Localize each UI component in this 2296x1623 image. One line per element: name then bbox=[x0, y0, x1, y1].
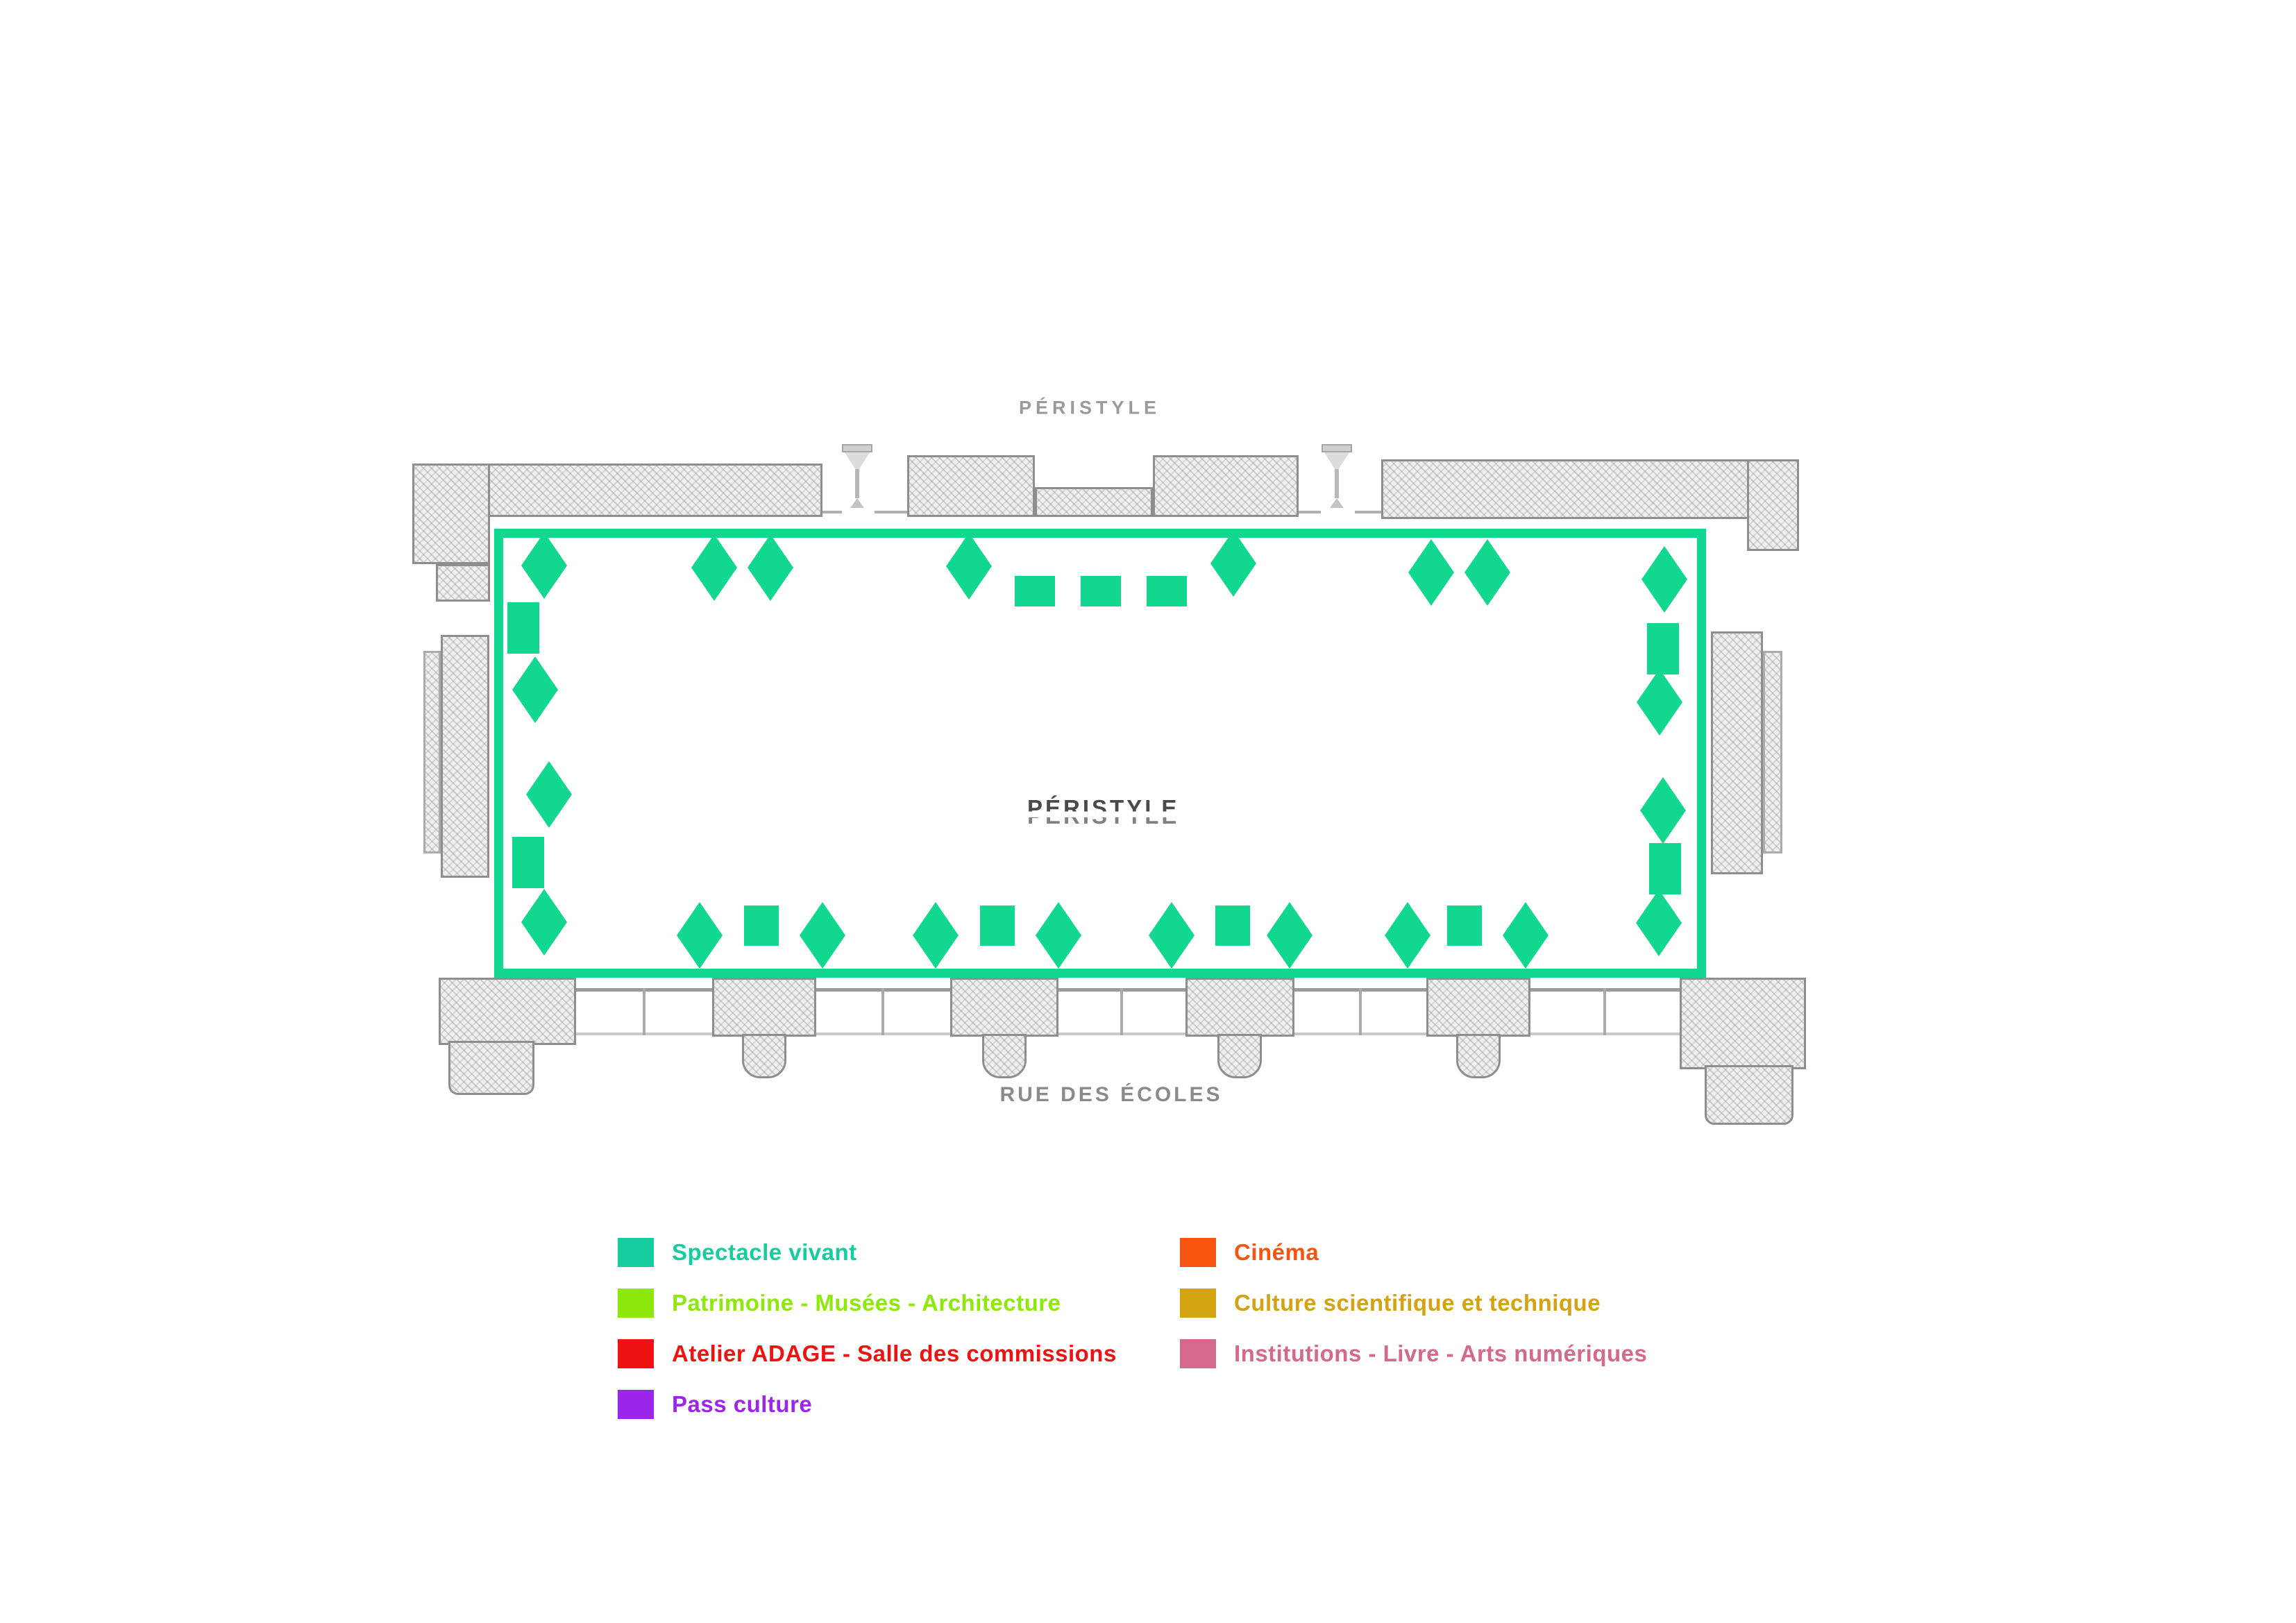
threshold-line bbox=[875, 511, 907, 513]
wall-top-center-right bbox=[1153, 455, 1299, 517]
legend-item: Patrimoine - Musées - Architecture bbox=[618, 1289, 1117, 1318]
legend-item: Culture scientifique et technique bbox=[1180, 1289, 1647, 1318]
wall-top-center-left bbox=[907, 455, 1035, 517]
wall-top-right bbox=[1381, 459, 1799, 519]
wall-pier bbox=[712, 978, 816, 1037]
legend-swatch bbox=[1180, 1339, 1216, 1368]
entrance-symbol-foot bbox=[850, 498, 864, 508]
booth-rect bbox=[1215, 906, 1250, 946]
legend-label: Culture scientifique et technique bbox=[1234, 1289, 1601, 1318]
wall-pier-base bbox=[982, 1034, 1027, 1078]
legend-item: Institutions - Livre - Arts numériques bbox=[1180, 1339, 1647, 1368]
booth-rect bbox=[1447, 906, 1482, 946]
wall-right-column bbox=[1711, 631, 1763, 874]
wall-right-outer bbox=[1763, 651, 1782, 853]
wall-pier-base bbox=[742, 1034, 786, 1078]
wall-pier bbox=[1426, 978, 1530, 1037]
wall-bottom-corner-right-base bbox=[1705, 1065, 1793, 1125]
facade-tick bbox=[643, 988, 645, 1035]
booth-rect bbox=[1649, 843, 1681, 894]
legend-item: Spectacle vivant bbox=[618, 1238, 1117, 1267]
entrance-symbol-icon bbox=[841, 444, 874, 511]
legend-label: Cinéma bbox=[1234, 1238, 1319, 1267]
threshold-line bbox=[822, 511, 842, 513]
legend-label: Patrimoine - Musées - Architecture bbox=[672, 1289, 1061, 1318]
legend-swatch bbox=[618, 1238, 654, 1267]
facade-tick bbox=[1359, 988, 1362, 1035]
booth-rect bbox=[980, 906, 1015, 946]
threshold-line bbox=[1299, 511, 1321, 513]
facade-tick bbox=[1603, 988, 1606, 1035]
legend-column-right: CinémaCulture scientifique et techniqueI… bbox=[1180, 1238, 1647, 1390]
wall-pier-base bbox=[1217, 1034, 1262, 1078]
legend-swatch bbox=[618, 1289, 654, 1318]
booth-rect bbox=[512, 837, 544, 888]
legend-column-left: Spectacle vivantPatrimoine - Musées - Ar… bbox=[618, 1238, 1117, 1441]
booth-rect bbox=[744, 906, 779, 946]
wall-pier bbox=[950, 978, 1058, 1037]
booth-rect bbox=[1647, 623, 1679, 674]
label-peristyle-top: PÉRISTYLE bbox=[1019, 398, 1160, 419]
legend-label: Pass culture bbox=[672, 1390, 812, 1419]
legend-label: Institutions - Livre - Arts numériques bbox=[1234, 1339, 1647, 1368]
facade-tick bbox=[1120, 988, 1123, 1035]
entrance-symbol-cap bbox=[1322, 444, 1352, 452]
wall-bottom-corner-left-base bbox=[448, 1041, 534, 1095]
wall-pier bbox=[1185, 978, 1294, 1037]
entrance-symbol-stem bbox=[1335, 469, 1339, 498]
wall-left-outer bbox=[423, 651, 441, 853]
entrance-symbol-bowl bbox=[845, 452, 870, 469]
wall-bottom-corner-left bbox=[439, 978, 576, 1045]
booth-rect bbox=[507, 602, 539, 654]
label-rue-des-ecoles: RUE DES ÉCOLES bbox=[999, 1083, 1222, 1107]
wall-left-column bbox=[441, 635, 489, 878]
entrance-symbol-icon bbox=[1320, 444, 1353, 511]
legend-label: Atelier ADAGE - Salle des commissions bbox=[672, 1339, 1117, 1368]
legend-item: Pass culture bbox=[618, 1390, 1117, 1419]
booth-rect bbox=[1147, 576, 1187, 606]
legend-item: Atelier ADAGE - Salle des commissions bbox=[618, 1339, 1117, 1368]
wall-top-right-cap bbox=[1747, 459, 1799, 551]
legend-swatch bbox=[618, 1390, 654, 1419]
booth-rect bbox=[1081, 576, 1121, 606]
wall-top-left-cap bbox=[412, 464, 490, 564]
legend-swatch bbox=[618, 1339, 654, 1368]
floor-plan-page: PÉRISTYLE PÉRISTYLE PÉRISTYLE RUE DES ÉC… bbox=[0, 0, 2296, 1623]
legend-item: Cinéma bbox=[1180, 1238, 1647, 1267]
wall-top-left-step bbox=[436, 564, 490, 602]
legend-swatch bbox=[1180, 1238, 1216, 1267]
legend-swatch bbox=[1180, 1289, 1216, 1318]
facade-tick bbox=[881, 988, 884, 1035]
entrance-symbol-foot bbox=[1330, 498, 1344, 508]
threshold-line bbox=[1355, 511, 1381, 513]
booth-rect bbox=[1015, 576, 1055, 606]
wall-top-center-recess bbox=[1035, 487, 1153, 517]
legend-label: Spectacle vivant bbox=[672, 1238, 857, 1267]
entrance-symbol-cap bbox=[842, 444, 872, 452]
label-peristyle-center: PÉRISTYLE PÉRISTYLE bbox=[1027, 795, 1187, 841]
entrance-symbol-stem bbox=[855, 469, 859, 498]
wall-pier-base bbox=[1456, 1034, 1501, 1078]
entrance-symbol-bowl bbox=[1324, 452, 1349, 469]
wall-bottom-corner-right bbox=[1680, 978, 1806, 1069]
